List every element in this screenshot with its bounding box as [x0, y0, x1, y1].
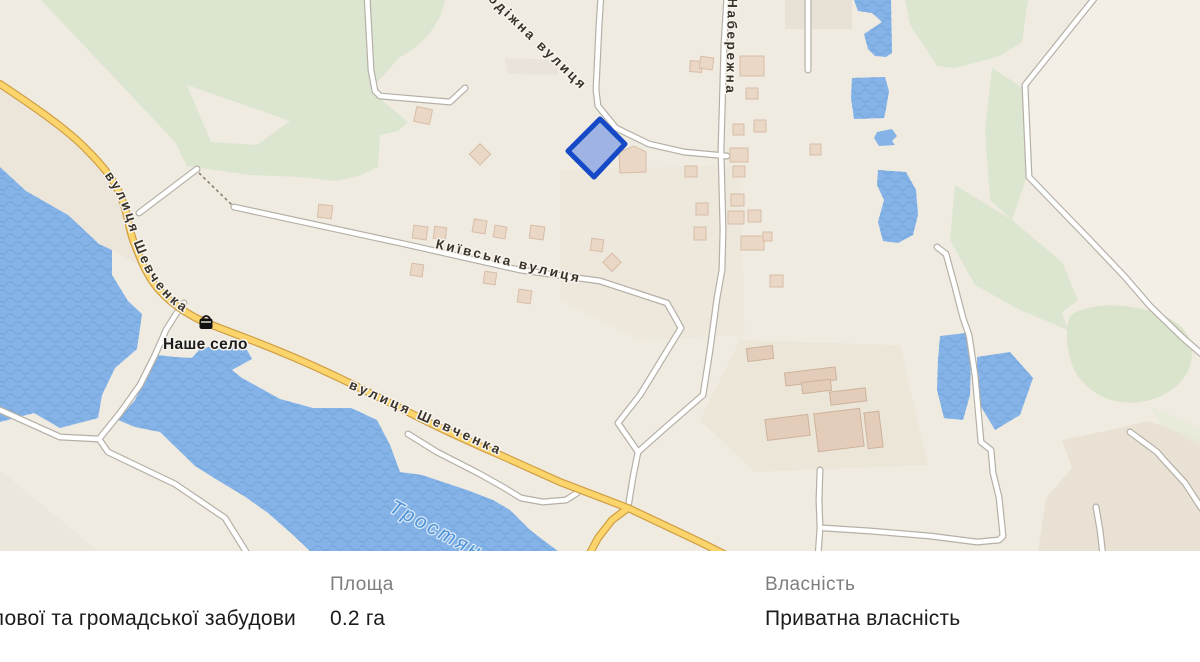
svg-text:Набережна: Набережна [723, 0, 740, 96]
svg-text:Наше село: Наше село [163, 336, 248, 353]
